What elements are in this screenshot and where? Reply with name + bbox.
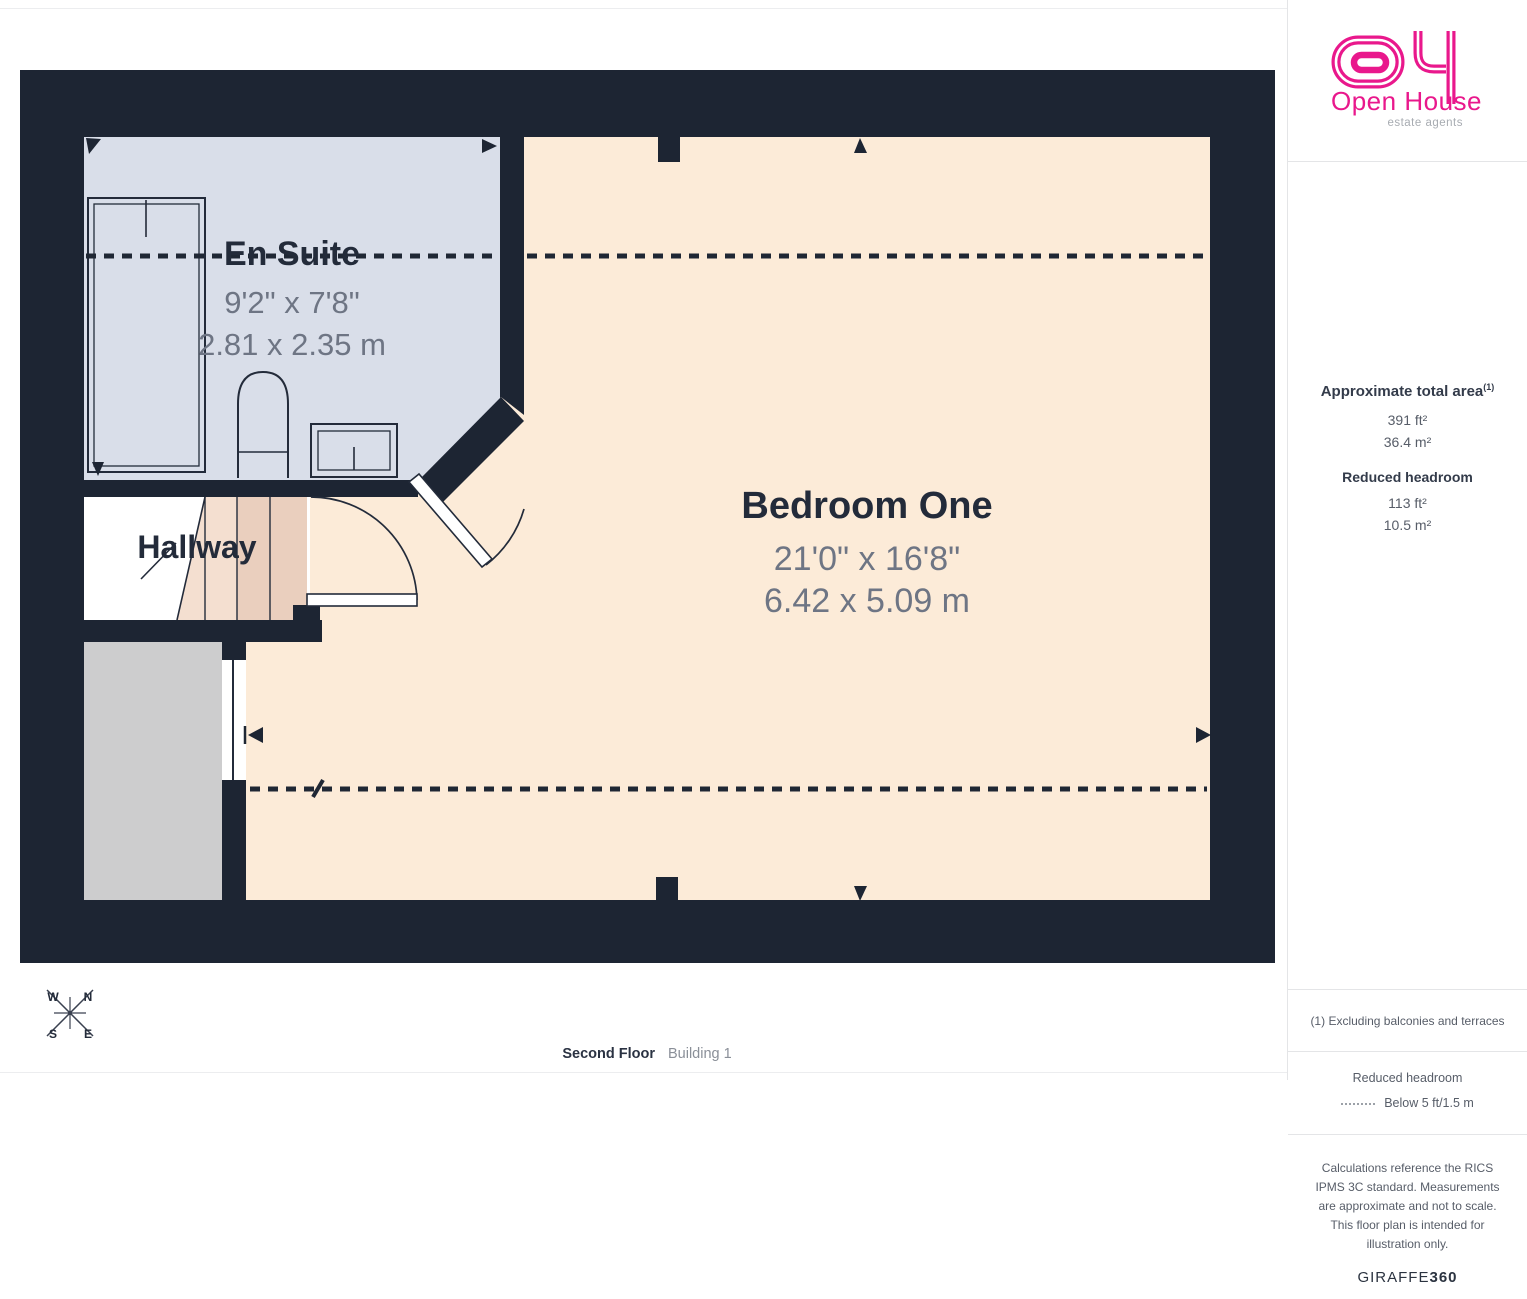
area-title-text: Approximate total area bbox=[1321, 383, 1484, 400]
compass-south: S bbox=[49, 1027, 57, 1041]
legend-row: Below 5 ft/1.5 m bbox=[1288, 1096, 1527, 1110]
logo-tagline: estate agents bbox=[1331, 117, 1463, 129]
floor-plan-page: W N S E En Suite 9'2" x 7'8" 2.81 x 2.35… bbox=[0, 0, 1527, 1080]
giraffe360-brand: GIRAFFE360 bbox=[1288, 1269, 1527, 1286]
reduced-value-m: 10.5 m² bbox=[1288, 514, 1527, 536]
building-name: Building 1 bbox=[668, 1046, 732, 1062]
compass-east: E bbox=[84, 1027, 92, 1041]
floor-plan-canvas: W N S E En Suite 9'2" x 7'8" 2.81 x 2.35… bbox=[0, 0, 1287, 1080]
excluding-note: (1) Excluding balconies and terraces bbox=[1310, 1014, 1504, 1028]
note-section: (1) Excluding balconies and terraces bbox=[1288, 990, 1527, 1052]
wall-below-hallway bbox=[60, 620, 322, 642]
room-void-floor bbox=[84, 642, 222, 900]
compass-north: N bbox=[84, 990, 93, 1004]
reduced-headroom-title: Reduced headroom bbox=[1288, 469, 1527, 485]
area-value-m: 36.4 m² bbox=[1288, 431, 1527, 453]
wall-void-bottom-block bbox=[222, 780, 246, 900]
disclaimer-text: Calculations reference the RICS IPMS 3C … bbox=[1310, 1159, 1506, 1254]
room-ensuite-floor bbox=[84, 137, 500, 480]
legend-label: Below 5 ft/1.5 m bbox=[1384, 1096, 1474, 1110]
wall-stub-top bbox=[658, 137, 680, 162]
stairs-dark-flight bbox=[237, 497, 307, 620]
dotted-line-icon bbox=[1341, 1103, 1375, 1105]
logo-o-inner bbox=[1354, 55, 1386, 70]
compass: W N S E bbox=[47, 990, 93, 1041]
reduced-value-ft: 113 ft² bbox=[1288, 492, 1527, 514]
compass-center-dot bbox=[68, 1011, 72, 1015]
wall-stub-bottom bbox=[656, 877, 678, 900]
wall-door-jamb bbox=[293, 605, 320, 642]
legend-section: Reduced headroom Below 5 ft/1.5 m bbox=[1288, 1052, 1527, 1135]
logo-section: Open House estate agents bbox=[1288, 0, 1527, 162]
wall-void-top-block bbox=[222, 623, 246, 660]
giraffe360-name: GIRAFFE bbox=[1357, 1269, 1429, 1286]
logo-brand-text: Open House bbox=[1331, 86, 1463, 117]
compass-west: W bbox=[47, 990, 59, 1004]
legend-title: Reduced headroom bbox=[1288, 1071, 1527, 1085]
floor-caption: Second FloorBuilding 1 bbox=[400, 1046, 894, 1062]
door-leaf bbox=[307, 594, 417, 606]
info-sidebar: Open House estate agents Approximate tot… bbox=[1287, 0, 1527, 1080]
area-value-ft: 391 ft² bbox=[1288, 409, 1527, 431]
area-title: Approximate total area(1) bbox=[1288, 382, 1527, 400]
floor-plan-svg: W N S E bbox=[0, 0, 1287, 1080]
area-block: Approximate total area(1) 391 ft² 36.4 m… bbox=[1288, 382, 1527, 536]
disclaimer-section: Calculations reference the RICS IPMS 3C … bbox=[1288, 1135, 1527, 1299]
logo-o-outer bbox=[1336, 40, 1400, 84]
area-section: Approximate total area(1) 391 ft² 36.4 m… bbox=[1288, 382, 1527, 990]
area-title-superscript: (1) bbox=[1483, 382, 1494, 392]
floor-name: Second Floor bbox=[562, 1046, 655, 1062]
giraffe360-suffix: 360 bbox=[1429, 1269, 1457, 1286]
